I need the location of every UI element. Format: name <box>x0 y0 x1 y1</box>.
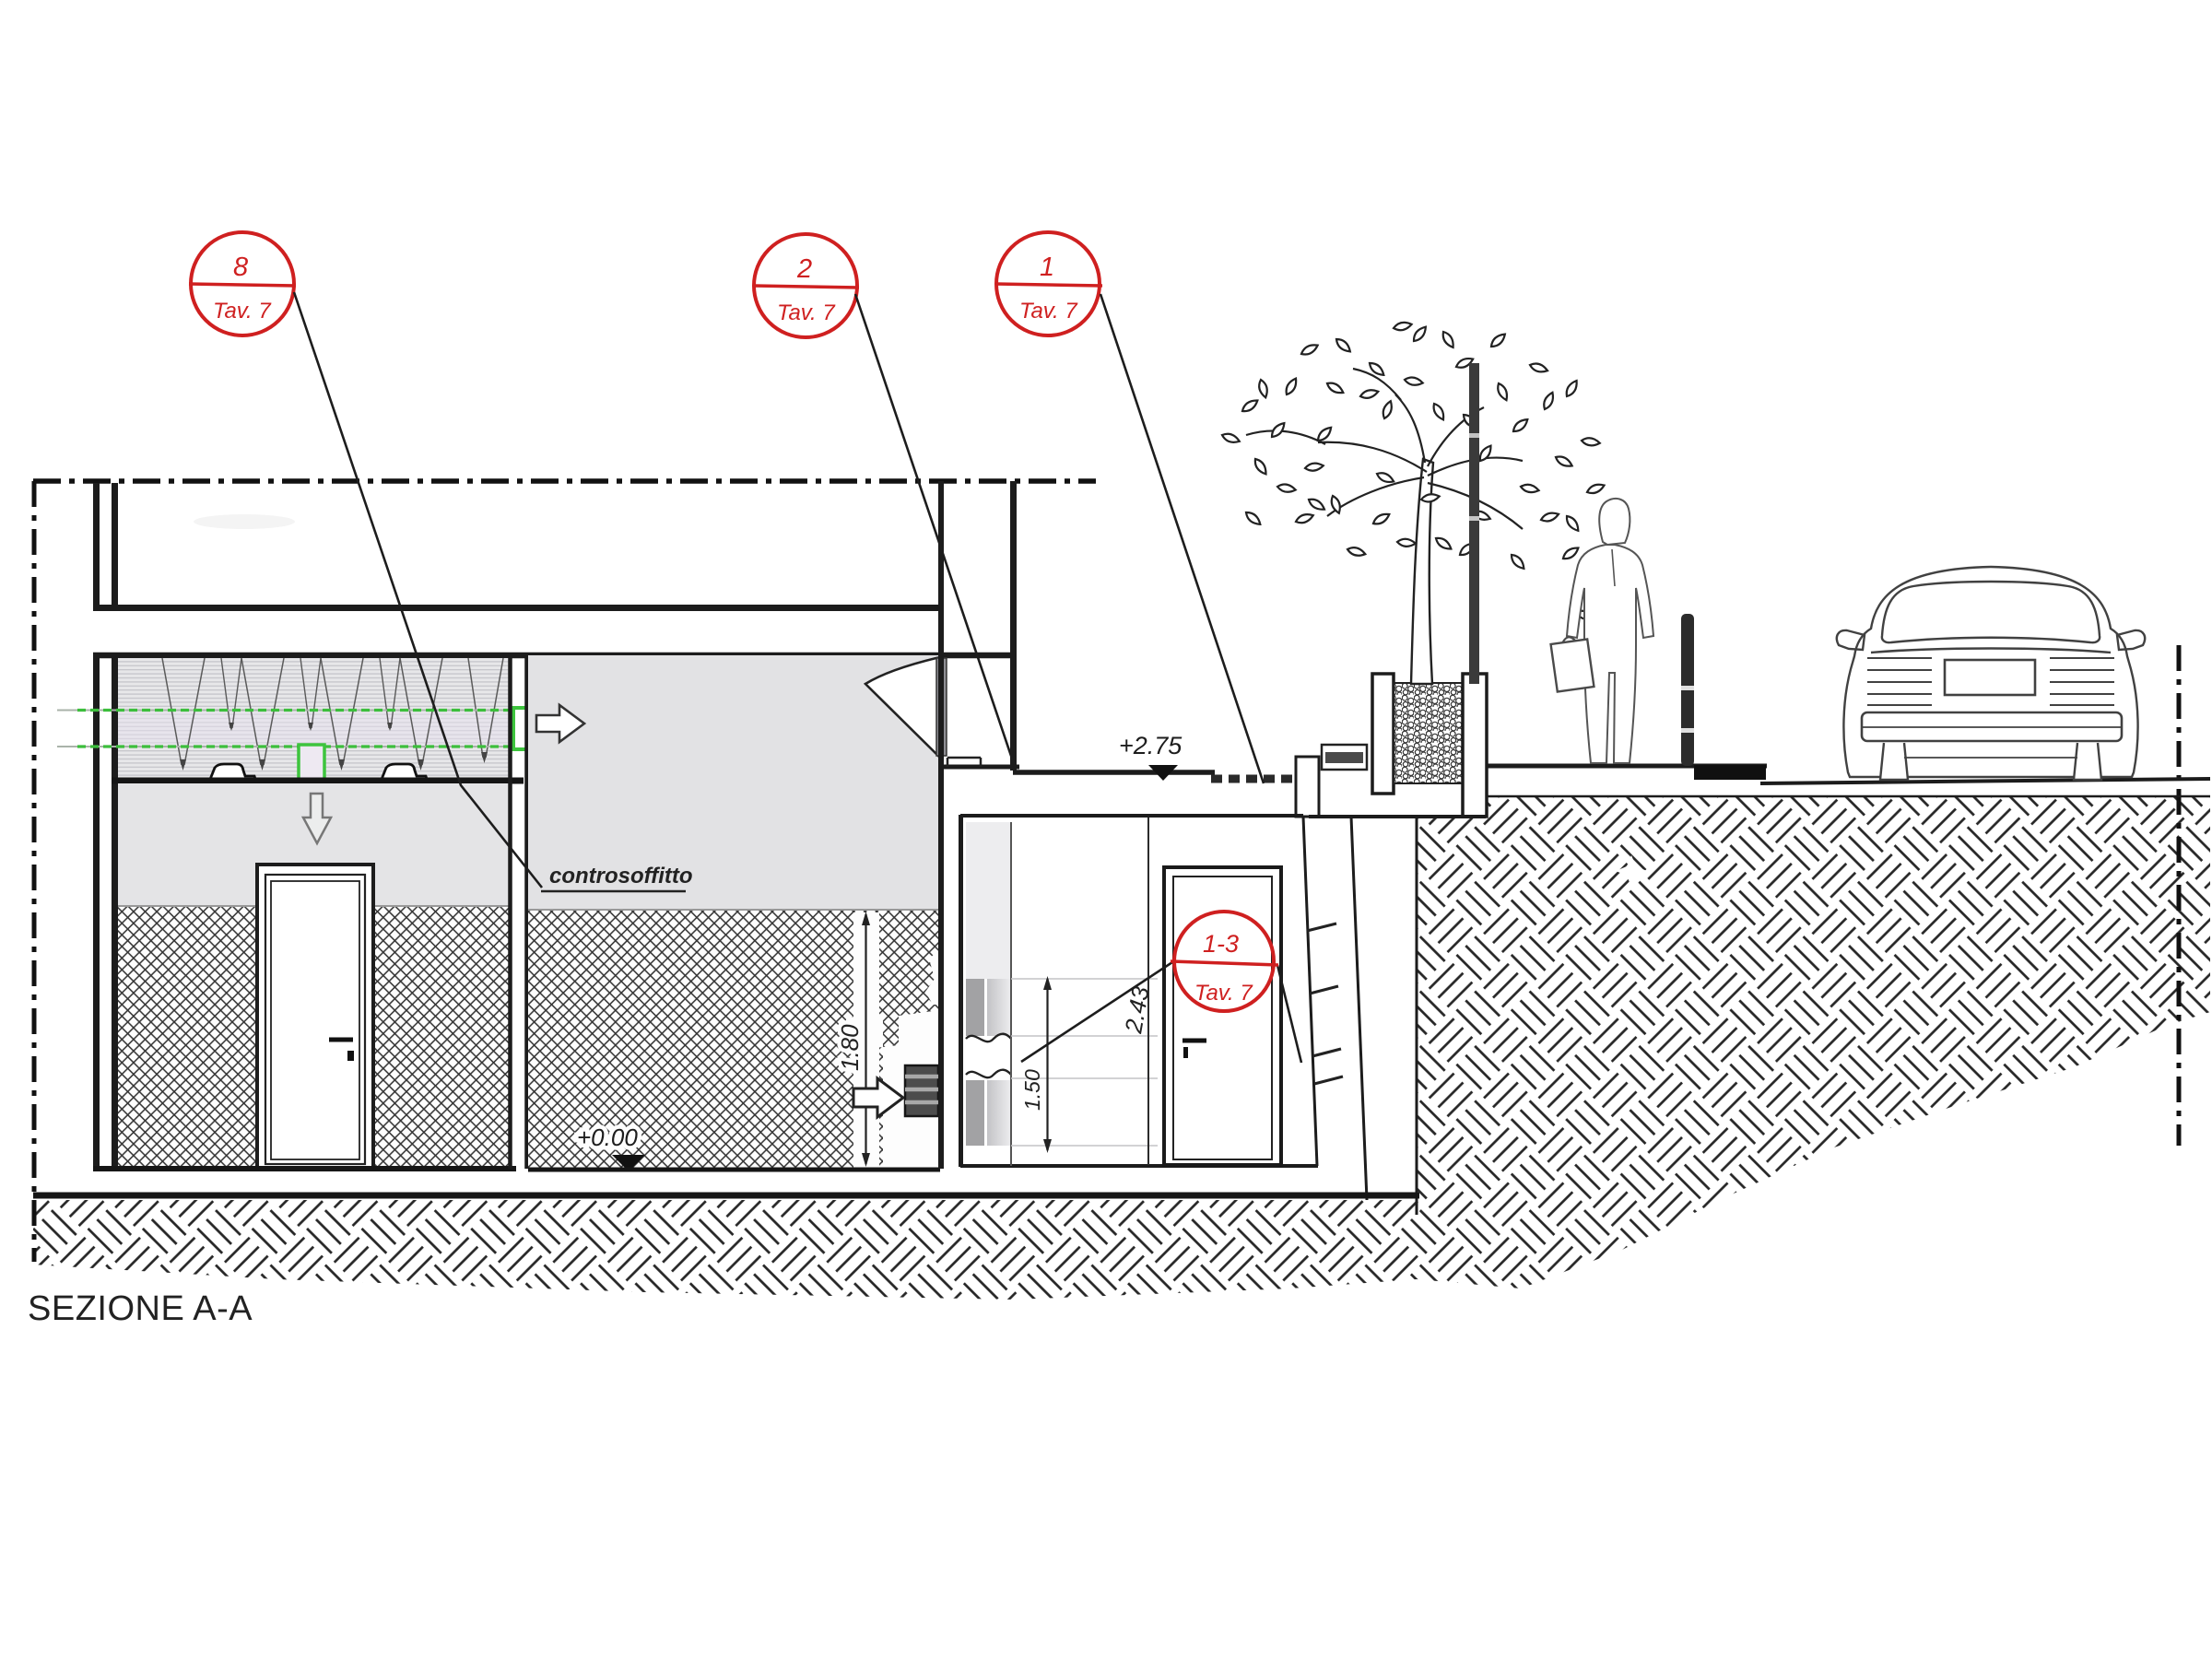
svg-text:controsoffitto: controsoffitto <box>549 864 693 888</box>
svg-text:+0.00: +0.00 <box>577 1124 638 1151</box>
svg-text:Tav. 7: Tav. 7 <box>1019 299 1078 324</box>
svg-text:1: 1 <box>1040 253 1054 282</box>
svg-text:1.50: 1.50 <box>1020 1069 1044 1111</box>
svg-text:2: 2 <box>796 254 812 284</box>
svg-text:SEZIONE A-A: SEZIONE A-A <box>28 1289 253 1328</box>
svg-text:Tav. 7: Tav. 7 <box>213 299 272 324</box>
svg-text:+2.75: +2.75 <box>1119 732 1182 759</box>
svg-text:Tav. 7: Tav. 7 <box>1194 981 1253 1006</box>
svg-text:1.80: 1.80 <box>836 1024 864 1071</box>
svg-text:1-3: 1-3 <box>1203 930 1239 958</box>
svg-text:Tav. 7: Tav. 7 <box>777 300 836 325</box>
svg-text:8: 8 <box>233 253 248 282</box>
